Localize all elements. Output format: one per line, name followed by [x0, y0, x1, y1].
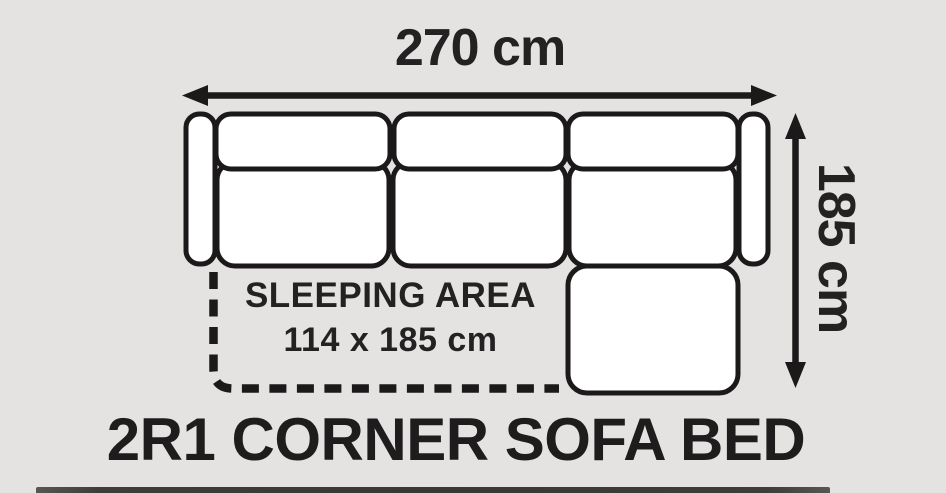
height-dimension-arrow-icon: [785, 113, 806, 388]
seat-cushion-1: [217, 162, 389, 266]
back-cushion-2: [394, 114, 566, 169]
width-dimension-label: 270 cm: [330, 22, 630, 74]
seat-cushion-3: [569, 162, 736, 266]
back-cushion-3: [568, 114, 738, 169]
left-armrest: [186, 114, 215, 264]
width-dimension-arrow-icon: [182, 85, 777, 106]
chaise-section: [568, 266, 738, 393]
product-title: 2R1 CORNER SOFA BED: [56, 410, 856, 470]
sleeping-area-dimensions: 114 x 185 cm: [214, 318, 567, 362]
height-dimension-label: 185 cm: [810, 163, 862, 333]
sleeping-area-title: SLEEPING AREA: [214, 274, 567, 318]
seat-cushion-2: [393, 162, 566, 266]
sofa-dimension-diagram: 270 cm 185 cm SLEEPING AREA 114 x 185 cm…: [0, 0, 946, 493]
right-armrest: [739, 114, 768, 264]
sleeping-area-text-block: SLEEPING AREA 114 x 185 cm: [214, 274, 567, 362]
back-cushion-1: [216, 114, 390, 169]
bottom-edge-strip: [36, 487, 830, 493]
